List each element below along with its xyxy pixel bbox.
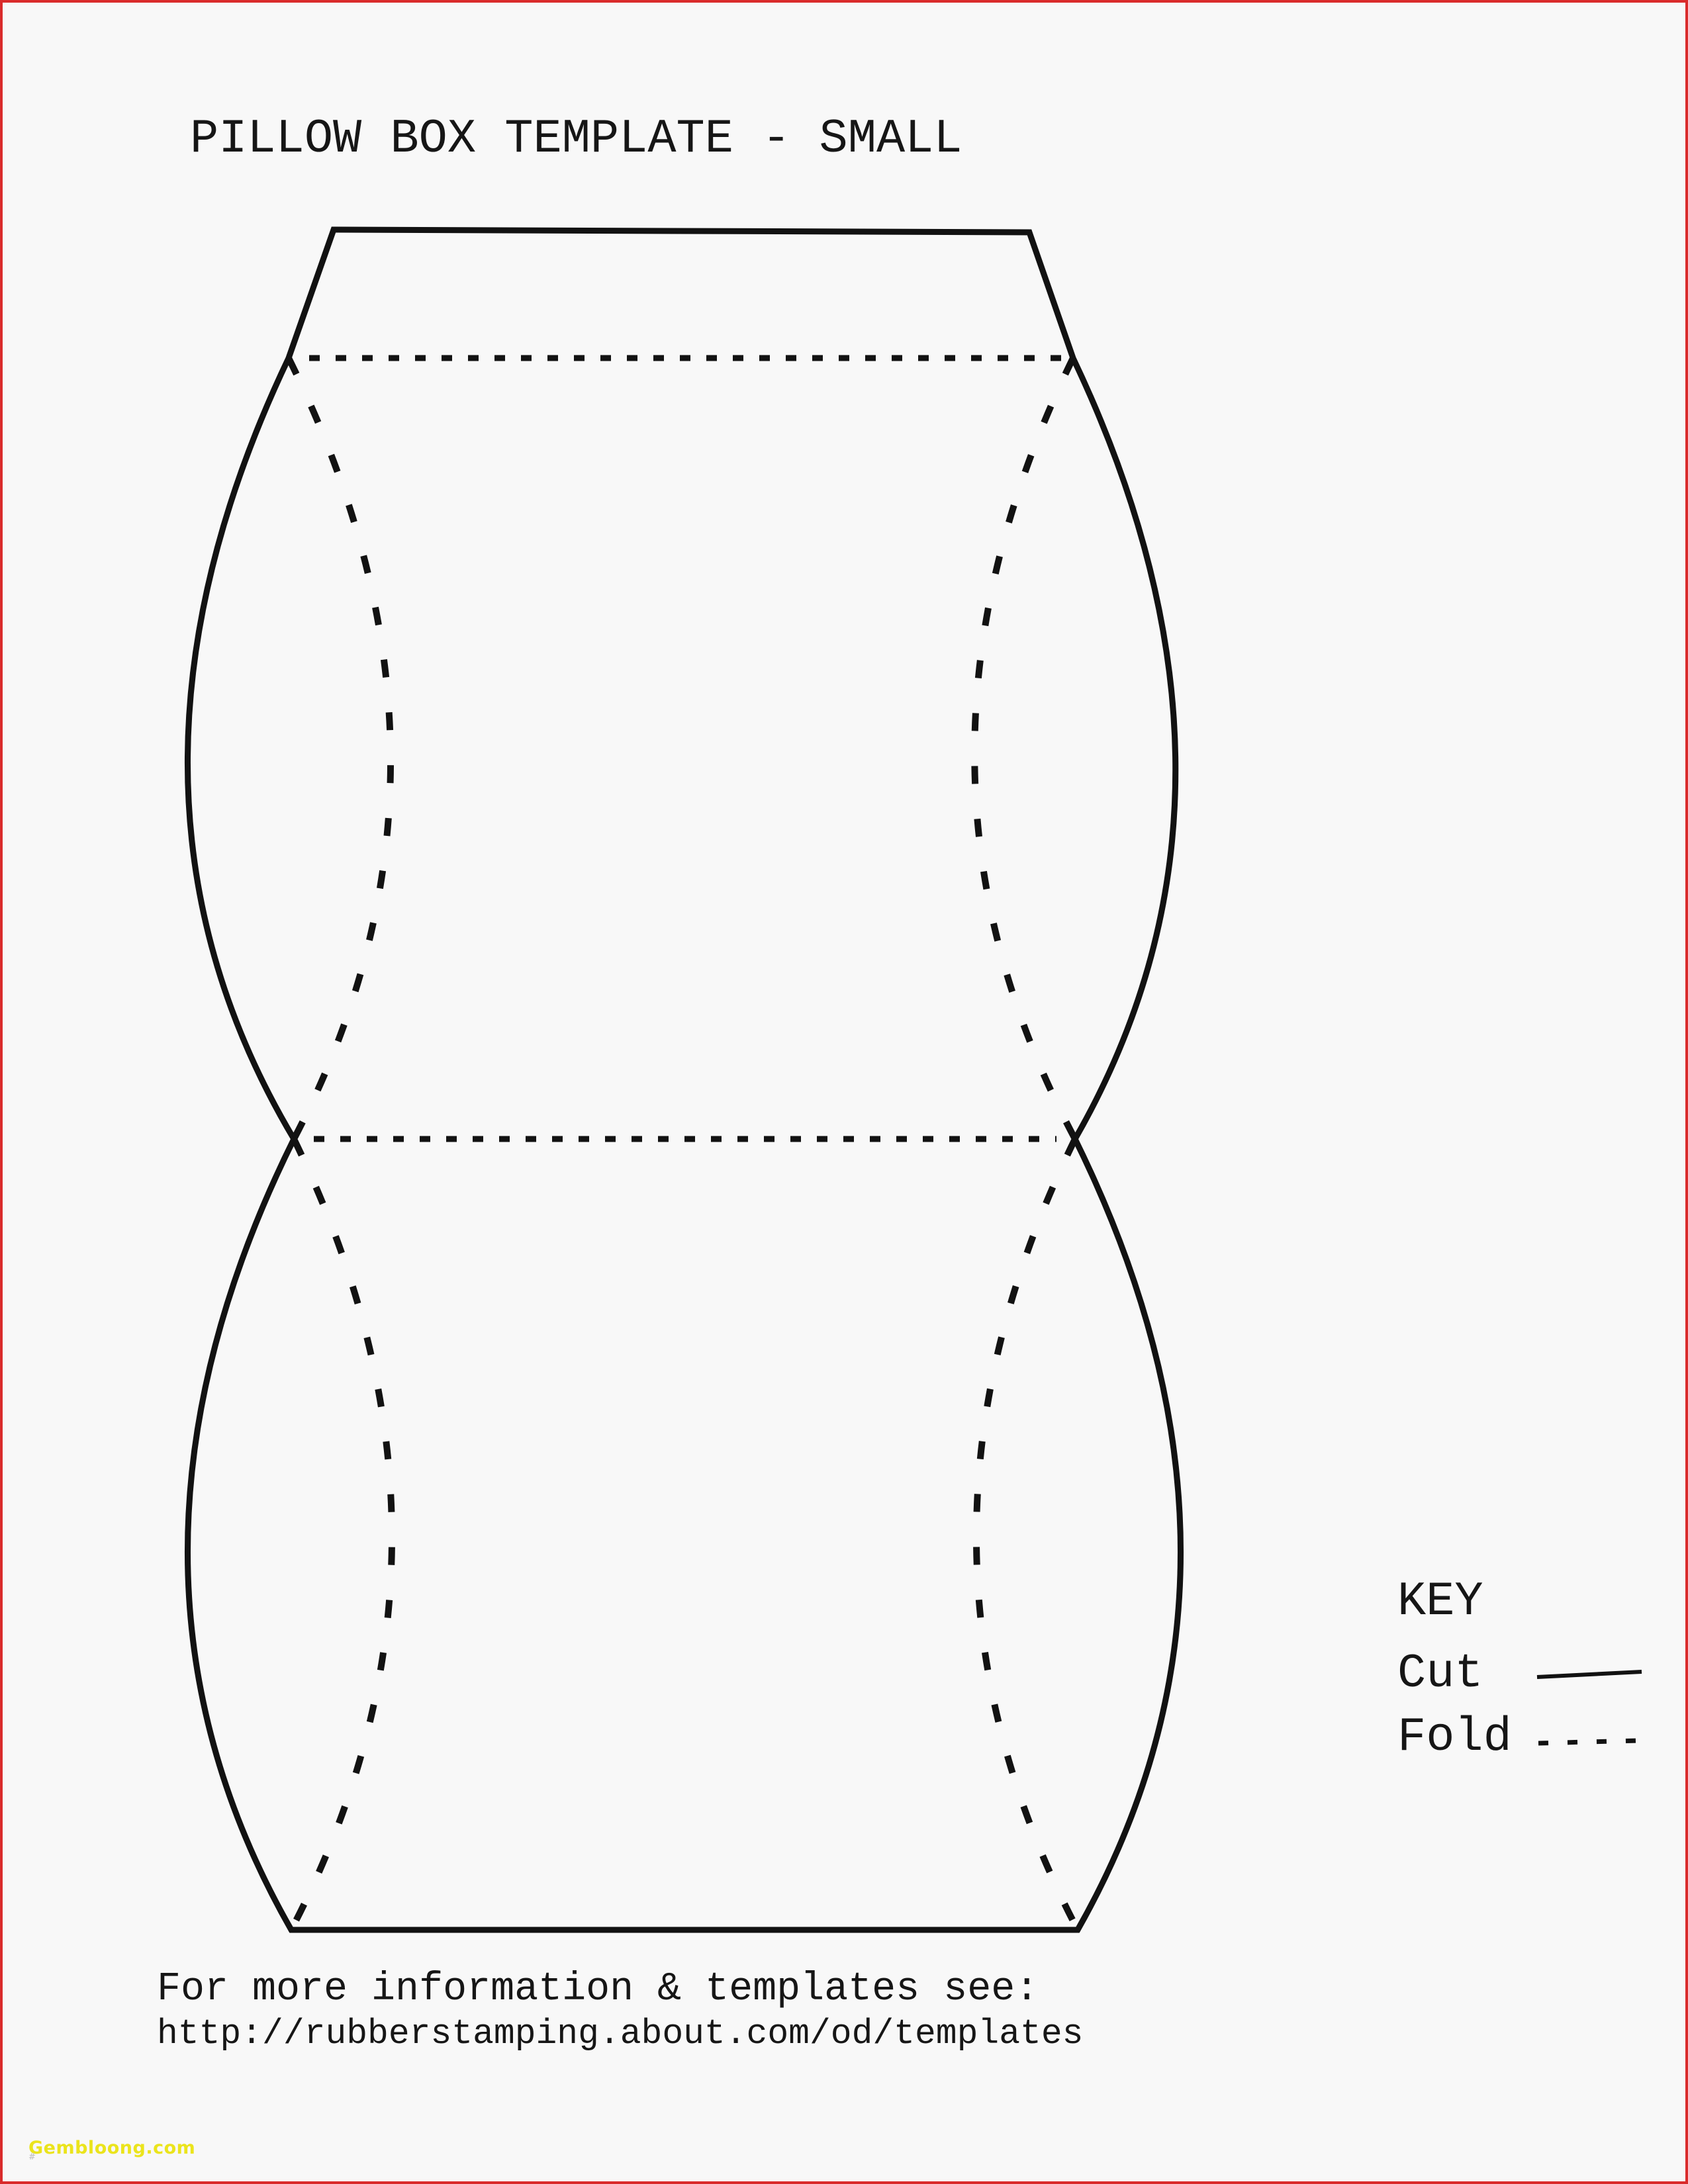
fold-arc-lower-right xyxy=(976,1139,1078,1930)
fold-arc-lower-left xyxy=(291,1139,392,1930)
fold-arc-upper-left xyxy=(289,358,391,1139)
key-cut-label: Cut xyxy=(1397,1650,1483,1698)
cut-outline-path xyxy=(187,230,1180,1930)
key-cut-line-sample xyxy=(1537,1672,1642,1677)
watermark: Gembloong.com xyxy=(28,2139,195,2157)
key-heading: KEY xyxy=(1397,1578,1483,1625)
footer-note: For more information & templates see: xyxy=(157,1970,1039,2009)
fold-arc-upper-right xyxy=(974,358,1075,1139)
pillow-box-template-page: PILLOW BOX TEMPLATE - SMALL KEY Cut Fold… xyxy=(0,0,1688,2184)
footer-url: http://rubberstamping.about.com/od/templ… xyxy=(157,2017,1083,2052)
key-fold-label: Fold xyxy=(1397,1713,1512,1761)
template-diagram xyxy=(3,3,1688,2184)
watermark-corner-mark: # xyxy=(28,2153,36,2161)
key-fold-line-sample xyxy=(1538,1741,1638,1743)
